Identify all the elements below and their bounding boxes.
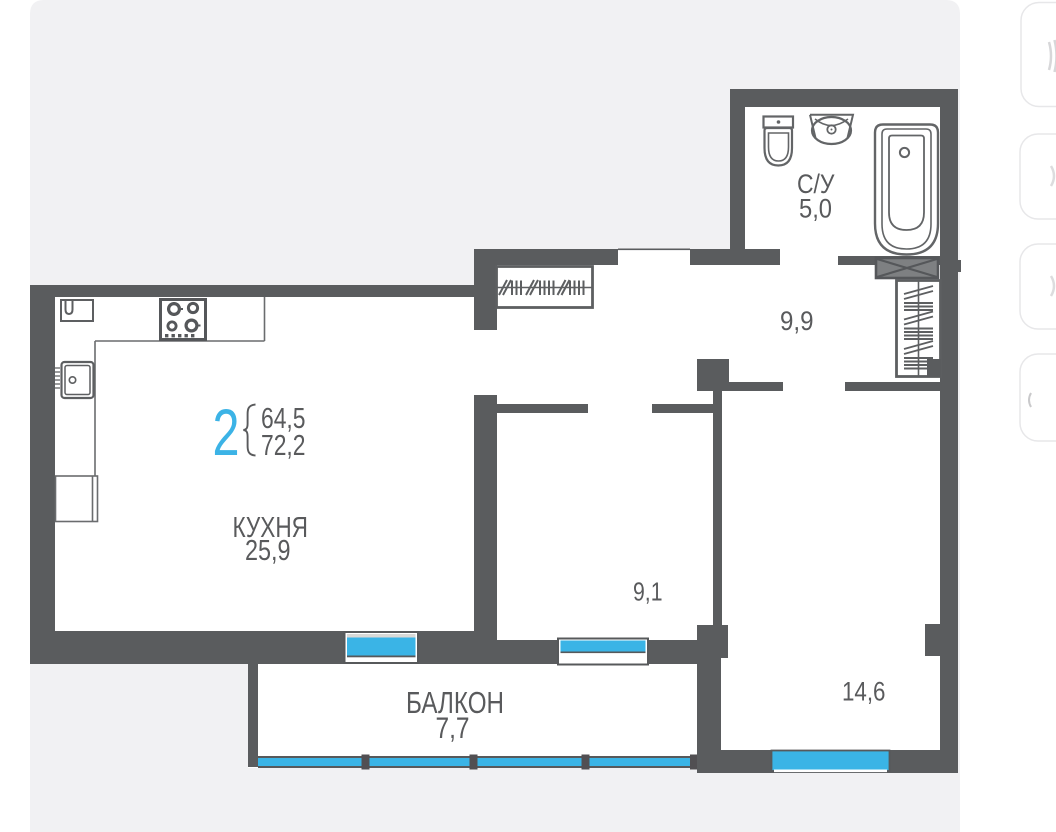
svg-text:14,6: 14,6 [842, 677, 886, 707]
svg-text:9,9: 9,9 [780, 306, 814, 336]
svg-text:25,9: 25,9 [245, 535, 291, 567]
svg-text:72,2: 72,2 [261, 430, 306, 462]
svg-text:2: 2 [213, 395, 240, 469]
svg-text:7,7: 7,7 [436, 712, 470, 745]
svg-text:9,1: 9,1 [633, 577, 663, 607]
svg-text:5,0: 5,0 [799, 194, 832, 224]
